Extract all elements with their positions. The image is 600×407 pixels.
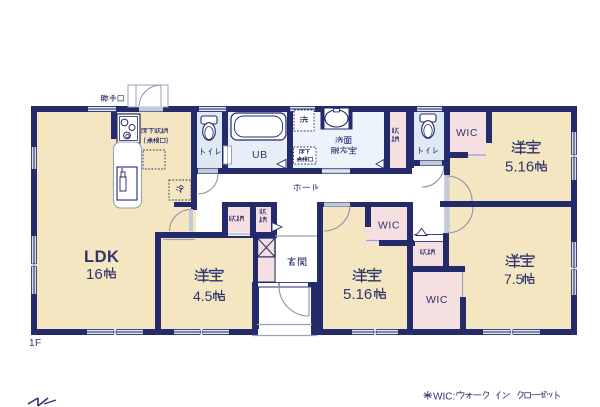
svg-text:WIC: WIC (426, 294, 448, 306)
svg-text:WIC: WIC (456, 127, 478, 139)
svg-text:UB: UB (252, 149, 268, 161)
svg-text:WIC: WIC (378, 220, 400, 232)
svg-text:4.5: 4.5 (193, 288, 213, 304)
svg-text:5.16: 5.16 (343, 286, 372, 303)
svg-text:16: 16 (86, 266, 103, 283)
svg-text:LDK: LDK (84, 248, 119, 266)
svg-text:1F: 1F (29, 338, 42, 349)
svg-text:7.5: 7.5 (504, 271, 524, 287)
svg-text:WIC:: WIC: (433, 392, 455, 403)
svg-text:5.16: 5.16 (505, 159, 534, 176)
